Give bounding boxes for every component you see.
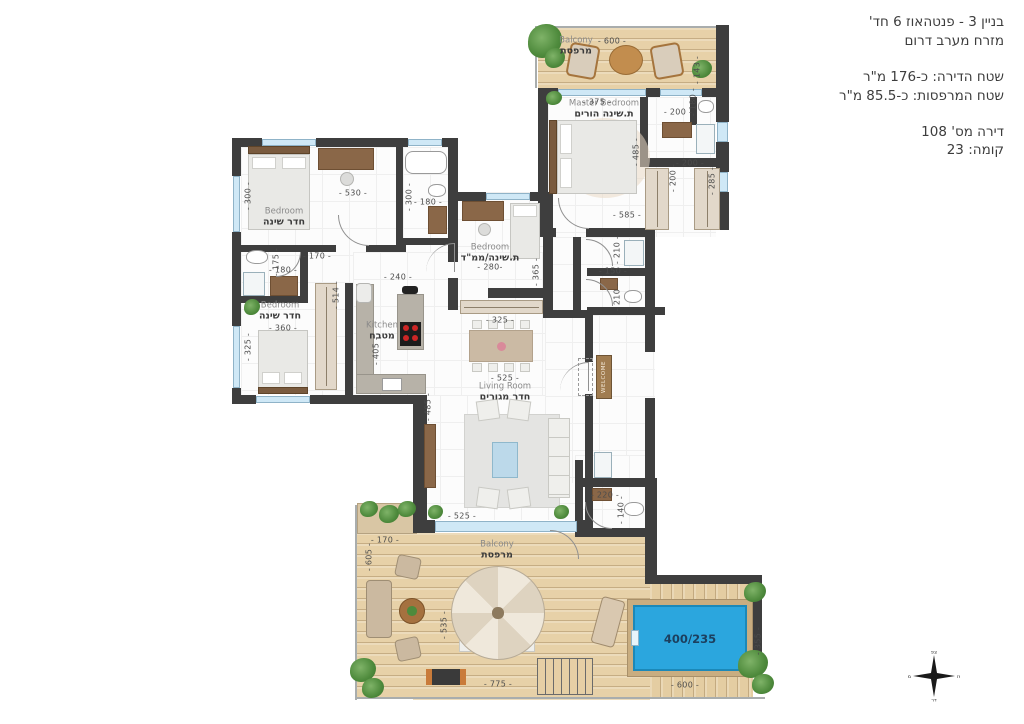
dim-label: - 150 - — [599, 267, 627, 276]
window — [262, 139, 316, 146]
wall — [548, 228, 556, 237]
wall — [232, 138, 241, 176]
wall — [587, 307, 665, 315]
bed-headboard — [248, 146, 310, 154]
wall — [316, 138, 408, 147]
toilet — [624, 290, 642, 303]
wall — [310, 395, 427, 404]
dim-label: - 585 - — [613, 211, 641, 220]
room-label-balcony-bottom: Balcony מרפסת — [480, 541, 514, 562]
burner — [403, 325, 409, 331]
wall — [650, 575, 762, 584]
dim-label: - 530 - — [339, 189, 367, 198]
chair — [472, 363, 482, 372]
compass-east-label: מז — [957, 674, 960, 680]
shower — [594, 452, 612, 478]
armchair — [507, 487, 532, 510]
room-label-bedroom1: Bedroom חדר שינה — [263, 208, 305, 229]
room-label-safe-room: Bedroom ת.שינה/ממ"ד — [461, 244, 520, 265]
dim-label: - 210 - — [613, 236, 622, 264]
dim-label: - 365 - — [532, 258, 541, 286]
burner — [412, 325, 418, 331]
desk — [462, 201, 504, 221]
plant — [744, 582, 766, 602]
chair — [340, 172, 354, 186]
title-apartment-no: דירה מס' 108 — [839, 123, 1004, 142]
dim-label: - 325 - — [244, 333, 253, 361]
wardrobe — [645, 168, 669, 230]
desk — [318, 148, 374, 170]
pool-size-label: 400/235 — [664, 632, 716, 646]
dim-label: - 143 - — [693, 56, 702, 84]
wall — [488, 288, 553, 298]
chair — [504, 363, 514, 372]
pillow — [513, 205, 537, 217]
dim-label: - 180 - — [689, 88, 698, 116]
compass-rose: צפ דר מז מע — [908, 650, 960, 702]
dim-label: - 525 - — [491, 374, 519, 383]
wall — [645, 398, 655, 483]
wall — [232, 395, 256, 404]
window — [233, 176, 240, 232]
dim-label: - 485 - — [632, 138, 641, 166]
dim-label: - 325 - — [486, 316, 514, 325]
tv-console — [424, 424, 436, 488]
dim-label: - 775 - — [484, 680, 512, 689]
chair — [478, 223, 491, 236]
pillow — [560, 158, 572, 188]
umbrella — [451, 566, 545, 660]
room-label-bedroom2: Bedroom חדר שינה — [259, 302, 301, 323]
wall — [645, 228, 655, 315]
title-apartment-area: שטח הדירה: כ-176 מ"ר — [839, 68, 1004, 87]
railing — [355, 697, 765, 699]
welcome-text: WELCOME — [601, 361, 607, 393]
pillow — [262, 372, 280, 384]
dim-label: - 220 - — [591, 491, 619, 500]
toilet — [246, 250, 268, 264]
burner — [403, 335, 409, 341]
toilet — [428, 184, 446, 197]
chair — [520, 320, 530, 329]
toilet — [698, 100, 714, 113]
dim-label: - 300 - — [405, 183, 414, 211]
dim-label: - 170 - — [303, 252, 331, 261]
kitchen-sink — [382, 378, 402, 391]
round-table — [399, 598, 425, 624]
dim-label: - 140 - — [617, 496, 626, 524]
bed-headboard — [549, 120, 557, 194]
railing — [535, 26, 725, 28]
dim-label: - 514 - — [332, 281, 341, 309]
dim-label: - 600 - — [671, 681, 699, 690]
pillow — [560, 124, 572, 154]
dim-label: - 405 - — [372, 337, 381, 365]
dim-label: - 300 - — [244, 182, 253, 210]
kettle — [402, 286, 418, 294]
dim-label: - 200 - — [676, 159, 704, 168]
compass-north-label: צפ — [931, 650, 937, 656]
vanity — [428, 206, 447, 234]
dim-label: - 360 - — [269, 324, 297, 333]
window — [408, 139, 442, 146]
dim-label: - 180 - — [414, 198, 442, 207]
wall — [702, 88, 716, 97]
dim-label: - 285 - — [708, 167, 717, 195]
wall — [448, 288, 458, 298]
dim-label: - 200 - — [669, 164, 678, 192]
pillow — [252, 157, 276, 169]
vanity — [662, 122, 692, 138]
window — [486, 193, 530, 200]
floor-plan-canvas: WELCOME 400/235 — [0, 0, 1024, 724]
title-orientation: מזרח מערב דרום — [839, 32, 1004, 51]
dim-label: - 535 - — [440, 611, 449, 639]
dim-label: - 375 - — [583, 98, 611, 107]
shower — [624, 240, 644, 266]
chair — [520, 363, 530, 372]
outdoor-sofa — [366, 580, 392, 638]
title-block: בניין 3 - פנטהאוז 6 חד' מזרח מערב דרום ש… — [839, 13, 1004, 160]
pool-ladder — [631, 630, 639, 646]
lounge-chair — [649, 42, 684, 81]
armchair — [476, 487, 501, 510]
bed-headboard — [258, 387, 308, 394]
outdoor-chair — [394, 554, 422, 581]
wall — [645, 315, 655, 352]
pillow — [282, 157, 306, 169]
dim-label: - 170 - — [371, 536, 399, 545]
dim-label: - 600 - — [598, 37, 626, 46]
compass-south-label: דר — [931, 698, 937, 703]
table-flowers — [497, 342, 506, 351]
wall — [716, 25, 729, 122]
coffee-table — [492, 442, 518, 478]
dim-label: - 355 - — [754, 627, 763, 655]
bathtub — [405, 151, 447, 174]
wall — [345, 283, 353, 402]
room-label-living: Living Room חדר מגורים — [479, 383, 531, 404]
dim-label: - 280- — [477, 263, 502, 272]
toilet — [624, 502, 644, 516]
shower — [696, 124, 715, 154]
wall — [645, 483, 657, 584]
dim-label: - 180 - — [269, 266, 297, 275]
wall — [573, 237, 581, 315]
wall — [545, 310, 593, 318]
wall — [427, 520, 435, 533]
dim-label: - 605 - — [365, 543, 374, 571]
stairs — [537, 658, 593, 695]
wardrobe — [460, 300, 543, 314]
compass-west-label: מע — [908, 674, 911, 680]
title-balcony-area: שטח המרפסות: כ-85.5 מ"ר — [839, 87, 1004, 106]
balcony-table — [609, 45, 643, 75]
wall — [366, 245, 406, 252]
window — [233, 326, 240, 388]
pillow — [284, 372, 302, 384]
window — [717, 122, 728, 142]
dim-label: - 240 - — [384, 273, 412, 282]
dim-label: - 525 - — [448, 512, 476, 521]
wall — [396, 147, 403, 245]
dim-label: - 485 - — [424, 393, 433, 421]
plant — [752, 674, 774, 694]
welcome-mat: WELCOME — [596, 355, 612, 399]
title-building: בניין 3 - פנטהאוז 6 חד' — [839, 13, 1004, 32]
title-floor: קומה: 23 — [839, 141, 1004, 160]
dim-label: - 210 - — [613, 283, 622, 311]
vanity — [270, 276, 298, 296]
fridge — [356, 283, 372, 303]
chair — [488, 363, 498, 372]
window — [256, 396, 310, 403]
bench — [426, 669, 466, 685]
sofa — [548, 418, 570, 498]
window — [558, 89, 646, 96]
room-label-balcony-top: Balcony מרפסת — [559, 37, 593, 58]
shower — [243, 272, 265, 296]
wall — [646, 88, 660, 97]
chair — [472, 320, 482, 329]
burner — [412, 335, 418, 341]
